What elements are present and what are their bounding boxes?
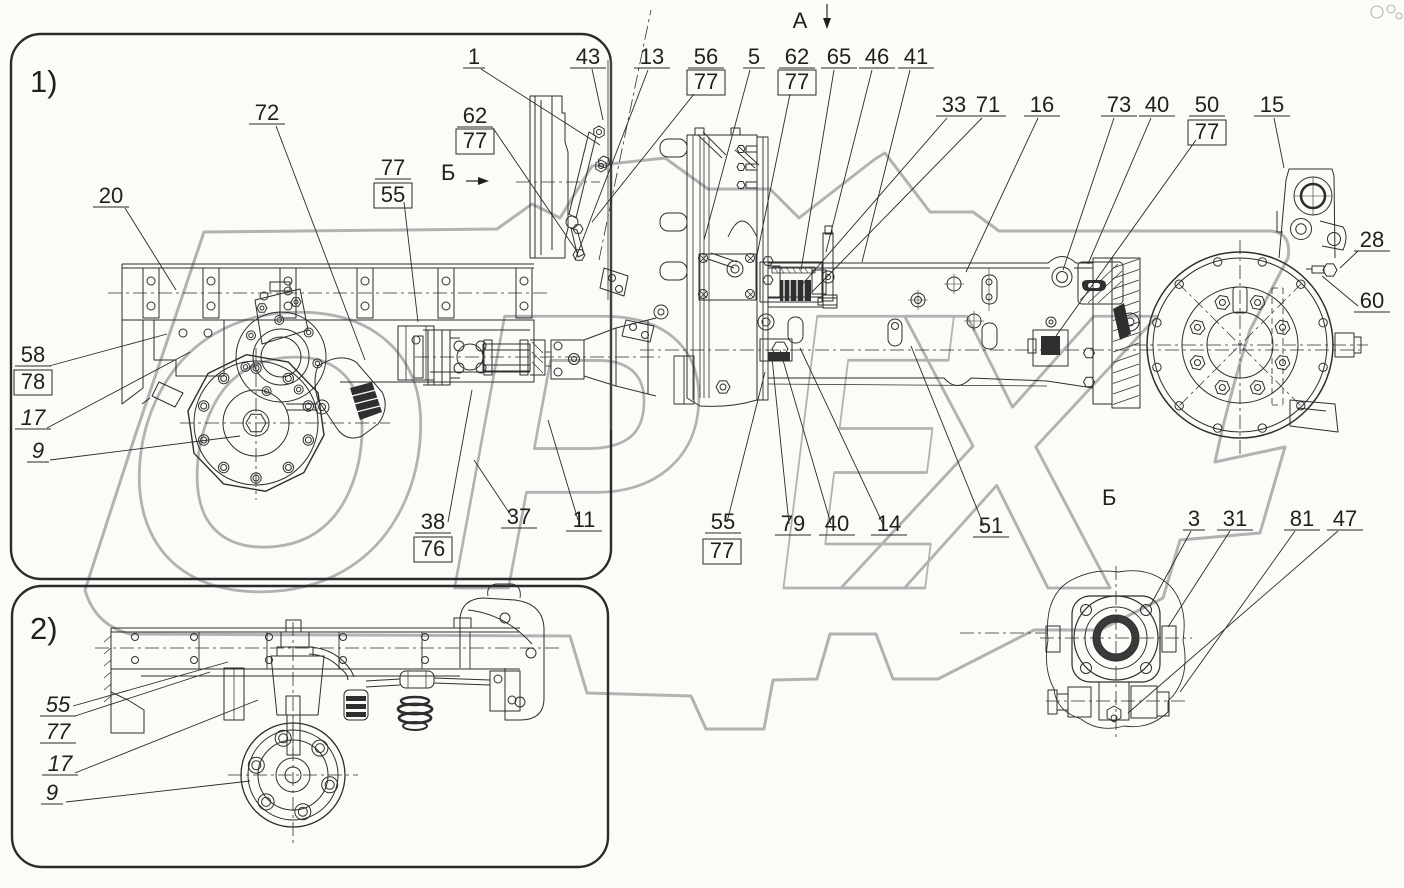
svg-text:55: 55	[711, 509, 735, 534]
svg-text:60: 60	[1360, 288, 1384, 313]
svg-text:77: 77	[463, 128, 487, 153]
svg-text:13: 13	[640, 44, 664, 69]
svg-text:Б: Б	[441, 160, 455, 185]
svg-text:43: 43	[576, 44, 600, 69]
svg-text:37: 37	[507, 504, 531, 529]
svg-text:76: 76	[421, 536, 445, 561]
svg-text:11: 11	[573, 507, 596, 532]
svg-text:50: 50	[1195, 92, 1219, 117]
svg-text:62: 62	[463, 103, 487, 128]
svg-text:77: 77	[381, 155, 405, 180]
svg-text:62: 62	[785, 44, 809, 69]
svg-text:16: 16	[1030, 92, 1054, 117]
svg-text:9: 9	[32, 438, 44, 463]
svg-text:15: 15	[1260, 92, 1284, 117]
svg-text:77: 77	[710, 538, 734, 563]
svg-text:73: 73	[1107, 92, 1131, 117]
svg-text:71: 71	[976, 92, 1000, 117]
svg-text:79: 79	[781, 511, 805, 536]
svg-text:77: 77	[785, 69, 809, 94]
svg-text:3: 3	[1188, 506, 1200, 531]
svg-text:5: 5	[748, 44, 760, 69]
svg-text:46: 46	[865, 44, 889, 69]
svg-text:65: 65	[827, 44, 851, 69]
svg-text:Р: Р	[448, 230, 700, 672]
svg-text:78: 78	[21, 369, 45, 394]
svg-text:33: 33	[942, 92, 966, 117]
svg-text:40: 40	[1145, 92, 1169, 117]
svg-text:1): 1)	[30, 64, 58, 99]
svg-text:2): 2)	[30, 611, 58, 646]
svg-text:58: 58	[21, 342, 45, 367]
svg-text:81: 81	[1290, 506, 1314, 531]
svg-text:56: 56	[694, 44, 718, 69]
svg-text:20: 20	[99, 183, 123, 208]
svg-text:77: 77	[694, 69, 718, 94]
svg-text:55: 55	[381, 182, 405, 207]
svg-text:55: 55	[46, 692, 71, 717]
svg-text:А: А	[793, 8, 808, 33]
svg-text:38: 38	[421, 509, 445, 534]
svg-text:17: 17	[21, 405, 46, 430]
svg-text:77: 77	[1195, 119, 1219, 144]
svg-text:17: 17	[48, 751, 73, 776]
svg-text:31: 31	[1223, 506, 1247, 531]
svg-text:72: 72	[255, 100, 279, 125]
svg-text:28: 28	[1360, 227, 1384, 252]
svg-text:51: 51	[979, 513, 1003, 538]
svg-text:41: 41	[904, 44, 928, 69]
svg-text:Б: Б	[1102, 485, 1116, 510]
svg-text:14: 14	[877, 511, 901, 536]
svg-text:1: 1	[468, 44, 480, 69]
svg-text:Х: Х	[841, 230, 1159, 672]
svg-text:47: 47	[1333, 506, 1357, 531]
svg-text:9: 9	[46, 780, 58, 805]
svg-text:77: 77	[46, 719, 71, 744]
